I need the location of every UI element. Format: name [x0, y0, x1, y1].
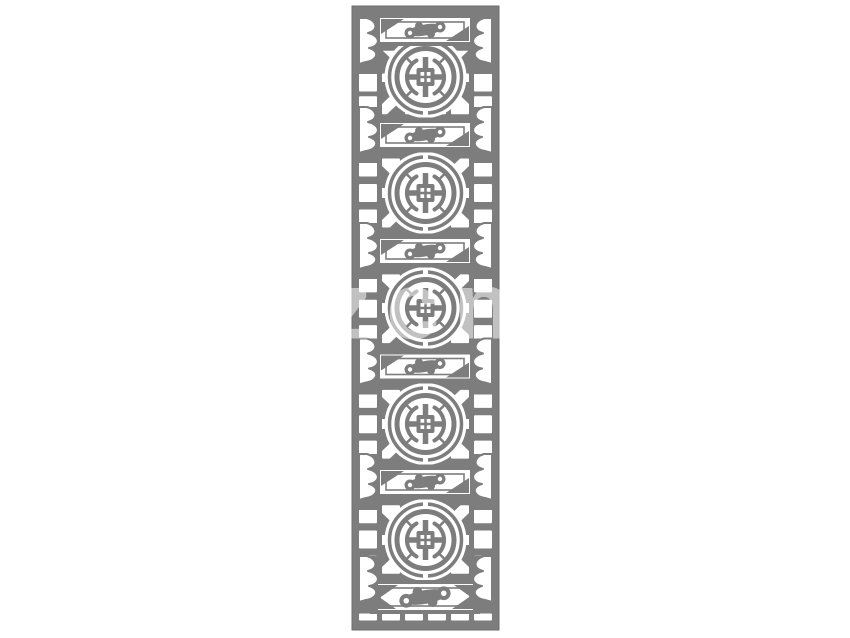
canvas: zcn	[0, 0, 850, 638]
lattice-panel-graphic	[0, 0, 850, 638]
